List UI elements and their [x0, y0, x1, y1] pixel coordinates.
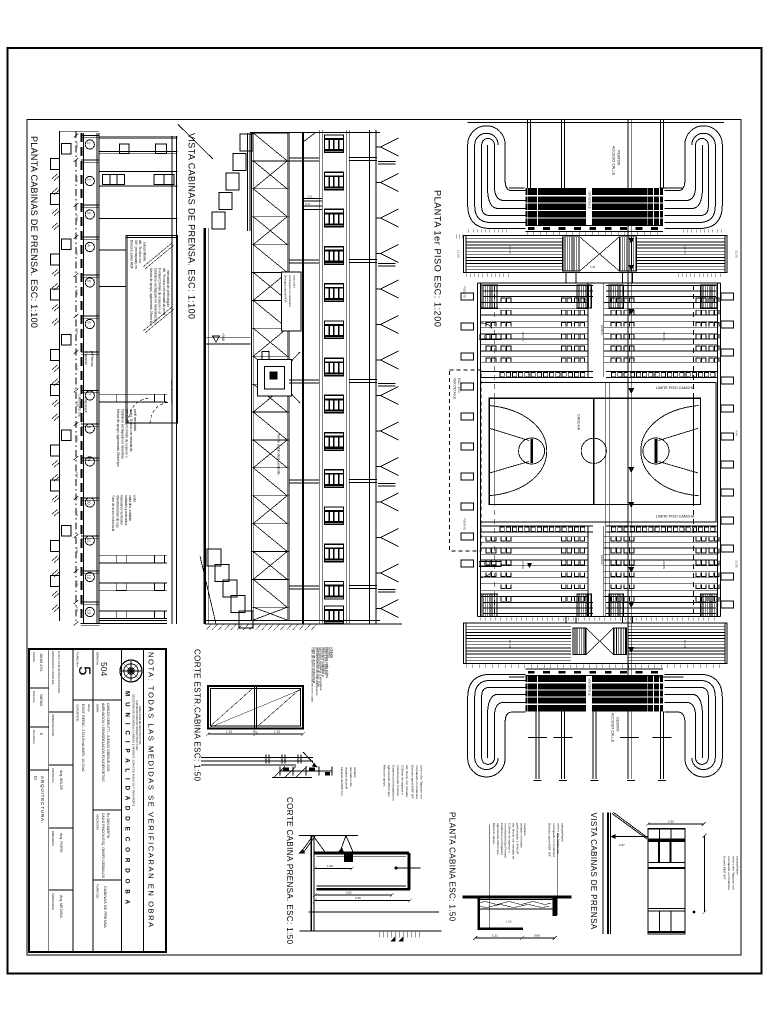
svg-text:del. Tecnica con: del. Tecnica con — [138, 240, 142, 263]
svg-text:SUPERVISOR: SUPERVISOR — [51, 893, 55, 910]
svg-text:autoperfilante: autoperfilante — [142, 242, 146, 262]
svg-text:11: 11 — [87, 538, 92, 543]
svg-text:3.02: 3.02 — [75, 435, 79, 441]
svg-text:1.09: 1.09 — [327, 864, 333, 868]
svg-text:0.97: 0.97 — [619, 843, 625, 847]
svg-text:E: E — [39, 733, 43, 735]
svg-text:12.60: 12.60 — [683, 246, 687, 254]
svg-text:autoperfilante: autoperfilante — [736, 856, 740, 875]
svg-text:RAMPA: RAMPA — [600, 555, 604, 565]
svg-text:Divisorio panel MDF 3/4": Divisorio panel MDF 3/4" — [411, 765, 415, 799]
svg-text:PLANTA CABINA ESC: 1.50: PLANTA CABINA ESC: 1.50 — [448, 812, 457, 922]
svg-text:2.50: 2.50 — [668, 819, 674, 823]
svg-text:DIBUJARON: DIBUJARON — [51, 831, 55, 846]
svg-text:EXIST. REFAC.: 2724.50m2 AMPL: EXIST. REFAC.: 2724.50m2 AMPL: 15.00m2 — [81, 704, 85, 772]
svg-text:dibujo: dibujo — [87, 704, 91, 712]
svg-text:CARLOS CERUTTI - JUEGOS ODESUR: CARLOS CERUTTI - JUEGOS ODESUR 2002 — [106, 703, 110, 772]
svg-text:2.01: 2.01 — [307, 194, 313, 198]
svg-text:baranda cortante: baranda cortante — [170, 380, 174, 404]
svg-text:UBICACION:: UBICACION: — [96, 814, 100, 831]
svg-text:LIMITE PISO CANCHA: LIMITE PISO CANCHA — [656, 386, 695, 390]
svg-text:frente publicidad existente: frente publicidad existente — [277, 434, 281, 475]
svg-text:UNION: UNION — [521, 332, 525, 341]
svg-text:VER DETALLE: VER DETALLE — [453, 378, 457, 399]
svg-text:autoperfilante: autoperfilante — [561, 823, 565, 842]
svg-text:2.00: 2.00 — [75, 581, 79, 587]
svg-text:Mesas de apoyo, aglomerado 25m: Mesas de apoyo, aglomerado 25mm tipo — [149, 268, 153, 326]
svg-text:5: 5 — [75, 666, 94, 675]
svg-text:0.05mm de espesor o: 0.05mm de espesor o — [401, 765, 405, 795]
svg-text:CABINAS DE PRENSA: CABINAS DE PRENSA — [103, 886, 108, 928]
svg-text:40x40mm/2mm de esp. travesanos: 40x40mm/2mm de esp. travesanos — [315, 647, 319, 696]
svg-text:3.00: 3.00 — [75, 548, 79, 554]
svg-text:soldados y amurados: soldados y amurados — [124, 495, 128, 526]
svg-text:enchapado en melamina: enchapado en melamina — [727, 856, 731, 890]
svg-text:travesanos verticales: travesanos verticales — [120, 495, 124, 525]
svg-text:PEATON: PEATON — [617, 150, 621, 166]
svg-text:.50: .50 — [252, 730, 257, 734]
svg-text:12.60: 12.60 — [457, 250, 461, 258]
svg-text:Arq. MEDINA: Arq. MEDINA — [59, 895, 63, 918]
svg-text:UNION: UNION — [662, 560, 666, 569]
svg-text:enchapado en melamina: enchapado en melamina — [415, 765, 419, 799]
svg-text:1.25: 1.25 — [226, 730, 232, 734]
svg-text:Formial 0.04mm de espesor o al: Formial 0.04mm de espesor o al — [158, 268, 162, 314]
svg-text:2.00: 2.00 — [75, 328, 79, 334]
svg-text:Tubo de acero estructural: Tubo de acero estructural — [111, 495, 115, 531]
svg-text:Mesas de apoyo, aglomerado 25m: Mesas de apoyo, aglomerado 25mm tipo — [116, 409, 120, 467]
svg-text:Cadmiera enchapado en melamina: Cadmiera enchapado en melamina — [120, 409, 124, 459]
svg-text:RAMPA: RAMPA — [600, 325, 604, 335]
svg-text:PRENSA: PRENSA — [84, 397, 88, 413]
svg-text:UNION: UNION — [521, 560, 525, 569]
svg-text:color o det. Tapacan con: color o det. Tapacan con — [731, 856, 735, 890]
svg-text:40x40mm/2mm de esp.: 40x40mm/2mm de esp. — [115, 495, 119, 528]
svg-text:5.48: 5.48 — [590, 265, 596, 269]
svg-text:Arq. WILDE: Arq. WILDE — [59, 770, 63, 791]
svg-text:DESIGNACION CATASTRAL:: DESIGNACION CATASTRAL: — [51, 651, 55, 686]
svg-text:12.60: 12.60 — [508, 246, 512, 254]
svg-text:PUENTE: PUENTE — [463, 518, 467, 530]
svg-text:3.00: 3.00 — [75, 290, 79, 296]
svg-text:AMPLIACION Y REMODELACION POLI: AMPLIACION Y REMODELACION POLIDEPORTIVO — [101, 703, 105, 782]
svg-text:Nro ARCH.: Nro ARCH. — [32, 730, 36, 744]
svg-text:1.95: 1.95 — [506, 920, 512, 924]
svg-text:en melamina tipo Formial: en melamina tipo Formial — [504, 823, 508, 858]
svg-text:10: 10 — [87, 500, 92, 505]
svg-text:CANCHA: CANCHA — [577, 414, 581, 431]
svg-text:aglomerado 25mm tipo: aglomerado 25mm tipo — [496, 823, 500, 855]
svg-text:Arq. FIORE: Arq. FIORE — [59, 833, 63, 853]
svg-text:0.97: 0.97 — [305, 202, 311, 206]
svg-text:tipo Formial 0.04mm de espesor: tipo Formial 0.04mm de espesor o — [125, 409, 129, 458]
svg-text:CORTE CABINA PRENSA. ESC:: CORTE CABINA PRENSA. ESC: 1:50 — [285, 797, 294, 945]
svg-text:Divisorio panel MDF: Divisorio panel MDF — [130, 240, 134, 269]
svg-text:perfil merodado: perfil merodado — [133, 409, 137, 431]
svg-text:PUENTE: PUENTE — [463, 286, 467, 298]
svg-text:a det.: a det. — [133, 495, 137, 503]
svg-text:SUPERFICIE:: SUPERFICIE: — [76, 704, 80, 722]
svg-text:2.01: 2.01 — [75, 607, 79, 613]
svg-text:Bo SAN MARTIN: Bo SAN MARTIN — [106, 813, 110, 839]
svg-text:12: 12 — [87, 574, 92, 579]
svg-text:Cadmiera enchapado en melamina: Cadmiera enchapado en melamina tipo — [153, 268, 157, 324]
svg-text:31.05: 31.05 — [735, 250, 739, 258]
svg-text:VER DETALLE: VER DETALLE — [588, 191, 592, 209]
svg-text:PLANO Nro: PLANO Nro — [76, 652, 80, 667]
svg-text:det. Novar con mesada: det. Novar con mesada — [405, 765, 409, 797]
svg-text:PROYECTO: PROYECTO — [51, 768, 55, 783]
svg-text:SUBSECRETARIA DE INFRAESTRUCTU: SUBSECRETARIA DE INFRAESTRUCTURA — [135, 700, 138, 751]
svg-text:PLANTA 1er PISO ESC: 1:2: PLANTA 1er PISO ESC: 1:200 — [433, 190, 443, 328]
svg-text:CORTE ESTR.CABINA ESC: 1:5: CORTE ESTR.CABINA ESC: 1:50 — [193, 649, 202, 782]
svg-text:enchapado en melamina: enchapado en melamina — [288, 275, 292, 307]
svg-text:ACCESO CALLE: ACCESO CALLE — [611, 713, 615, 743]
svg-text:504: 504 — [99, 662, 109, 676]
svg-text:aglomerado 25mm tipo: aglomerado 25mm tipo — [387, 765, 391, 797]
svg-text:p/Prensa: p/Prensa — [90, 351, 95, 367]
svg-text:JUNIO 2001: JUNIO 2001 — [39, 653, 43, 672]
svg-text:3.11: 3.11 — [75, 365, 79, 371]
svg-text:2.00: 2.00 — [75, 472, 79, 478]
svg-text:Cadmiera (enchapado) en: Cadmiera (enchapado) en — [392, 765, 396, 801]
svg-text:color o det. Varios con: color o det. Varios con — [556, 823, 560, 854]
svg-text:FECHA:: FECHA: — [32, 652, 36, 663]
svg-text:Desague pluvial NOF: Desague pluvial NOF — [284, 275, 288, 303]
svg-text:3/4" (enchapado) en: 3/4" (enchapado) en — [134, 240, 138, 269]
svg-text:UNION: UNION — [662, 332, 666, 341]
svg-text:cada a dist. soldada: cada a dist. soldada — [323, 647, 327, 675]
svg-text:perfil angulo 1 3/4x1/8": perfil angulo 1 3/4x1/8" — [515, 823, 519, 855]
svg-text:del. Tecnica con mesada de per: del. Tecnica con mesada de perfil — [162, 268, 166, 316]
svg-text:1.25: 1.25 — [274, 730, 280, 734]
svg-text:PLANTA CABINAS DE PRENSA.: PLANTA CABINAS DE PRENSA. ESC: 1:100 — [29, 136, 39, 328]
svg-text:VER DETALLE: VER DETALLE — [588, 679, 592, 697]
svg-text:SECRETARIA DE DESARROLLO URBAN: SECRETARIA DE DESARROLLO URBANO E INFRAE… — [132, 694, 135, 807]
svg-text:VISTA CABINAS DE PRENSA.: VISTA CABINAS DE PRENSA. ESC: 1:100 — [187, 133, 197, 319]
svg-text:0.84: 0.84 — [75, 177, 79, 183]
svg-text:ESC. 1:50: ESC. 1:50 — [457, 378, 461, 393]
svg-text:resaltos de perfil: resaltos de perfil — [344, 767, 348, 789]
svg-text:soldado: soldado — [353, 767, 357, 778]
svg-text:VARIAS: VARIAS — [39, 694, 43, 707]
svg-text:12.60: 12.60 — [683, 640, 687, 648]
svg-text:enchapado en melamina: enchapado en melamina — [552, 823, 556, 857]
svg-text:merodado de perfil angulo: merodado de perfil angulo — [166, 270, 170, 307]
svg-text:NOTA: TODAS LAS MEDIDAS SE: NOTA: TODAS LAS MEDIDAS SE VERIFICARAN E… — [147, 652, 156, 929]
svg-text:verticales soldados y amurados: verticales soldados y amurados — [319, 647, 323, 691]
svg-text:13: 13 — [87, 609, 92, 614]
svg-text:III: III — [33, 776, 38, 780]
svg-text:Tapacan de MDF con: Tapacan de MDF con — [340, 767, 344, 796]
svg-text:Divisorio panel MDF 3/4": Divisorio panel MDF 3/4" — [548, 823, 552, 857]
svg-text:3.00: 3.00 — [75, 142, 79, 148]
svg-text:al del. Tecnica con mesada de: al del. Tecnica con mesada de — [129, 409, 133, 452]
svg-text:Mesa de apoyo,: Mesa de apoyo, — [492, 823, 496, 845]
svg-text:3.11: 3.11 — [75, 511, 79, 517]
svg-text:color o det. Tapacan con: color o det. Tapacan con — [420, 765, 424, 799]
svg-text:ACCESO CALLE: ACCESO CALLE — [612, 146, 616, 176]
svg-text:OBSERVACIONES: OBSERVACIONES — [51, 714, 55, 737]
svg-text:ARQUITECTURA.: ARQUITECTURA. — [40, 776, 45, 824]
svg-text:Espacio: Espacio — [84, 351, 89, 365]
svg-text:amurado o det.: amurado o det. — [349, 767, 353, 787]
svg-text:3.11: 3.11 — [75, 250, 79, 256]
svg-text:cota a det.: cota a det. — [293, 275, 297, 289]
svg-text:0.05mm de espesor o: 0.05mm de espesor o — [508, 823, 512, 853]
svg-text:0.80: 0.80 — [534, 933, 540, 937]
svg-text:LIMITE PISO CANCHA: LIMITE PISO CANCHA — [656, 515, 695, 519]
svg-text:mediante: mediante — [523, 823, 527, 836]
svg-text:soldado o tornado: soldado o tornado — [519, 823, 523, 848]
svg-text:Tubo de acero estructural secc: Tubo de acero estructural seccion cuadr. — [311, 647, 315, 703]
svg-text:2.01: 2.01 — [346, 891, 352, 895]
svg-text:CALLE RINCON ESQ. OBISPO CEBAL: CALLE RINCON ESQ. OBISPO CEBALLOS — [101, 813, 105, 879]
svg-text:4.44: 4.44 — [735, 430, 739, 436]
svg-text:PLANO DE:: PLANO DE: — [96, 884, 100, 899]
svg-text:2.00: 2.00 — [75, 215, 79, 221]
svg-text:DESVIO: DESVIO — [616, 717, 620, 731]
svg-text:soldado: soldado — [328, 647, 332, 658]
svg-text:Mesa de apoyo,: Mesa de apoyo, — [383, 765, 387, 787]
svg-text:2.35: 2.35 — [355, 896, 361, 900]
svg-text:1.21: 1.21 — [492, 933, 498, 937]
svg-text:D.03-Z.13-M.037/033=P.001/002: D.03-Z.13-M.037/033=P.001/002 — [57, 651, 61, 693]
svg-text:ESCALA:: ESCALA: — [32, 691, 36, 703]
svg-text:VISTA CABINAS DE PRENSA: VISTA CABINAS DE PRENSA — [589, 813, 598, 930]
svg-text:31.05: 31.05 — [735, 560, 739, 568]
svg-text:12.60: 12.60 — [508, 640, 512, 648]
svg-text:Cenefa MDF 3/4": Cenefa MDF 3/4" — [723, 856, 727, 880]
svg-text:DIRECCION DE ARQUITECTURA: DIRECCION DE ARQUITECTURA — [138, 706, 141, 745]
svg-text:cada dist. soldada: cada dist. soldada — [128, 495, 132, 521]
svg-text:Cadmiera (enchapado): Cadmiera (enchapado) — [500, 823, 504, 855]
svg-text:OBRA:: OBRA: — [96, 704, 100, 713]
svg-text:OBRA Nro: OBRA Nro — [96, 652, 100, 666]
svg-text:CABINAS DE: CABINAS DE — [78, 394, 82, 417]
svg-text:melamina tipo Formial: melamina tipo Formial — [396, 765, 400, 796]
svg-text:det. Novar con mesada de: det. Novar con mesada de — [512, 823, 516, 860]
svg-text:M U N I C I P A L I D A D D E: M U N I C I P A L I D A D D E C O R D O … — [124, 691, 131, 906]
